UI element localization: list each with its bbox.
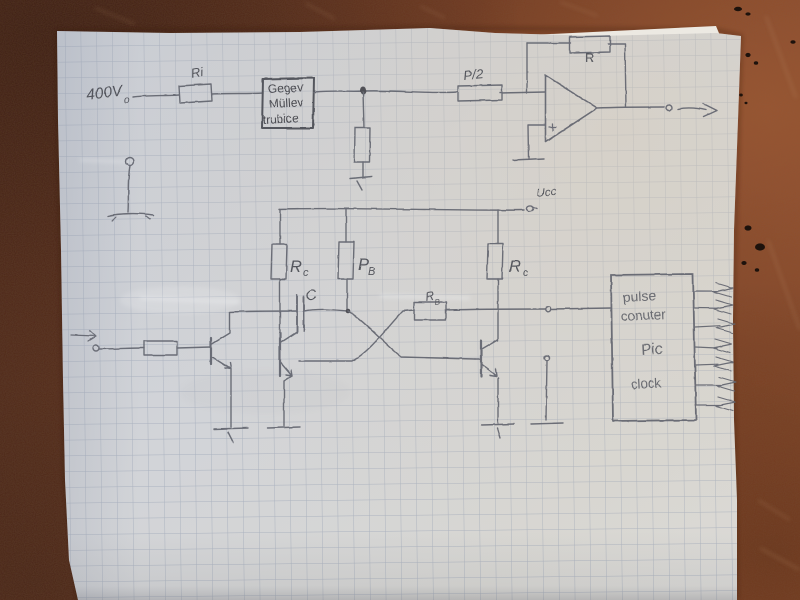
svg-text:R: R	[585, 50, 594, 65]
svg-text:R: R	[509, 258, 521, 276]
svg-text:R: R	[290, 258, 302, 276]
svg-text:Gegev: Gegev	[267, 80, 303, 96]
svg-text:conuter: conuter	[620, 307, 666, 324]
svg-text:Pic: Pic	[640, 341, 663, 359]
svg-text:B: B	[368, 266, 375, 278]
svg-text:Ucc: Ucc	[536, 186, 557, 200]
svg-text:c: c	[303, 267, 309, 279]
svg-text:P/2: P/2	[463, 66, 485, 83]
svg-text:trubice: trubice	[262, 111, 299, 127]
svg-text:o: o	[124, 95, 130, 106]
svg-text:Müllev: Müllev	[268, 95, 303, 111]
svg-text:pulse: pulse	[622, 287, 656, 305]
svg-text:c: c	[523, 267, 529, 279]
svg-text:clock: clock	[630, 375, 662, 392]
